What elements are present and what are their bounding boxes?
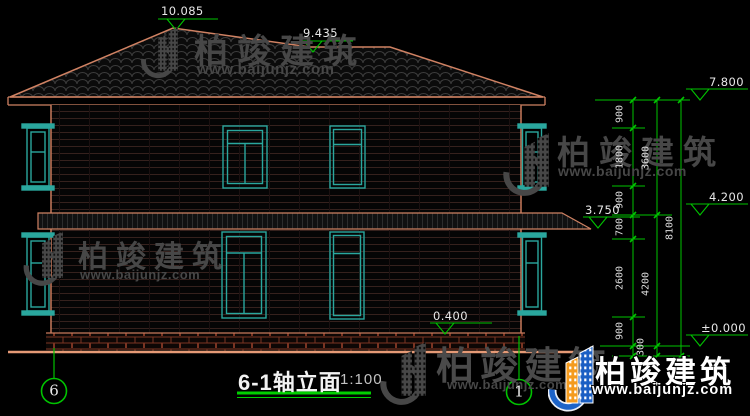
drawing-title: 6-1轴立面 [238,365,342,397]
elevation-label-eave: 7.800 [709,75,744,89]
watermark-top: 柏竣建筑 www.baijunjz.com [130,24,380,84]
dim-1f-window: 2600 [615,266,626,290]
watermark-url: www.baijunjz.com [80,267,200,282]
watermark-url: www.baijunjz.com [197,61,334,78]
brand-url: www.baijunjz.com [592,382,733,398]
watermark-left: 柏竣建筑 www.baijunjz.com [15,228,260,288]
cad-elevation-drawing: 柏竣建筑 www.baijunjz.com 柏竣建筑 www.baijunjz.… [0,0,750,416]
elevation-label-ground: ±0.000 [701,321,746,335]
bay-window-2f-left [22,124,54,190]
eave-fascia [8,97,545,105]
watermark-logo-icon [379,337,431,413]
dim-1f-sill: 900 [615,322,626,340]
watermark-logo-icon [502,128,554,204]
axis-number-right: 1 [514,382,524,400]
elevation-label-level2: 4.200 [709,190,744,204]
dim-2f-head: 900 [615,191,626,209]
dim-2f-sill: 900 [615,105,626,123]
elevation-label-plinth: 0.400 [433,309,468,323]
axis-number-left: 6 [49,381,59,399]
brand-logo-icon [548,341,602,415]
bay-window-1f-right [518,233,546,315]
drawing-scale: 1:100 [340,371,383,388]
dim-2f-storey: 3600 [641,146,652,170]
watermark-right: 柏竣建筑 www.baijunjz.com [502,126,750,188]
dim-1f-head: 700 [615,218,626,236]
elevation-label-ridge-top: 10.085 [161,4,204,18]
dim-1f-storey: 4200 [641,272,652,296]
watermark-logo-icon [17,230,73,290]
dim-total: 8100 [665,216,676,240]
brand-footer: 柏竣建筑 www.baijunjz.com [548,339,750,416]
first-floor-canopy [38,213,591,229]
elevation-label-ridge-lower: 9.435 [303,26,338,40]
second-floor-wall [51,105,521,214]
dim-2f-window: 1800 [615,145,626,169]
watermark-logo-icon [132,26,190,82]
